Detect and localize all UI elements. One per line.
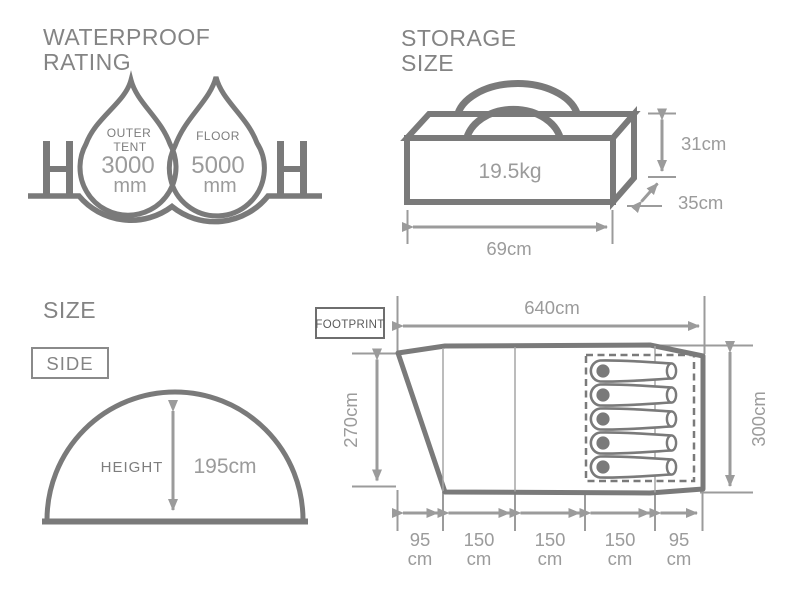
seg-4-unit: cm	[608, 548, 633, 569]
bag-depth-arrow	[642, 184, 658, 202]
tent-spec-diagram: WATERPROOF RATING OUTER TENT 3000 mm FLO…	[0, 0, 800, 600]
sleeping-bag-icon	[591, 408, 676, 429]
seg-5-unit: cm	[667, 548, 692, 569]
seg-2-unit: cm	[467, 548, 492, 569]
seg-2-value: 150	[464, 529, 495, 550]
sleeping-bag-icon	[591, 384, 676, 405]
seg-1-value: 95	[410, 529, 431, 550]
sleeping-bag-icon	[591, 360, 676, 381]
length-value: 640cm	[524, 297, 580, 318]
storage-title-line1: STORAGE	[401, 25, 517, 51]
floor-label: FLOOR	[196, 129, 240, 143]
floor-rating-unit: mm	[203, 175, 236, 197]
size-title: SIZE	[43, 297, 96, 323]
footprint-section: FOOTPRINT	[315, 296, 769, 569]
outer-tent-rating-unit: mm	[113, 175, 146, 197]
tent-height-value: 195cm	[193, 455, 256, 478]
sleeping-bag-icon	[591, 456, 676, 477]
outer-tent-label-line1: OUTER	[107, 126, 152, 140]
tent-side-profile-icon	[47, 392, 303, 520]
sleeping-bags	[591, 360, 676, 477]
water-surface-line	[28, 196, 322, 222]
waterproof-title-line2: RATING	[43, 49, 131, 75]
side-label: SIDE	[46, 353, 93, 374]
right-width-value: 300cm	[748, 391, 769, 447]
waterproof-title-line1: WATERPROOF	[43, 24, 210, 50]
storage-section: STORAGE SIZE 19.5kg 31cm 35cm 69cm	[401, 25, 726, 259]
storage-title-line2: SIZE	[401, 50, 454, 76]
footprint-label: FOOTPRINT	[315, 319, 384, 331]
seg-3-value: 150	[535, 529, 566, 550]
h-letter-right-icon	[277, 141, 307, 194]
seg-3-unit: cm	[538, 548, 563, 569]
waterproof-section: WATERPROOF RATING OUTER TENT 3000 mm FLO…	[28, 24, 322, 222]
bag-weight: 19.5kg	[478, 160, 541, 183]
seg-1-unit: cm	[408, 548, 433, 569]
seg-5-value: 95	[669, 529, 690, 550]
bag-top-face	[407, 114, 634, 138]
seg-4-value: 150	[605, 529, 636, 550]
bag-width-value: 69cm	[486, 238, 531, 259]
sleeping-bag-icon	[591, 432, 676, 453]
bag-height-value: 31cm	[681, 133, 726, 154]
left-width-value: 270cm	[340, 392, 361, 448]
h-letter-left-icon	[43, 141, 73, 194]
size-section: SIZE SIDE HEIGHT 195cm	[32, 297, 308, 522]
bag-depth-value: 35cm	[678, 192, 723, 213]
tent-height-label: HEIGHT	[101, 459, 164, 476]
